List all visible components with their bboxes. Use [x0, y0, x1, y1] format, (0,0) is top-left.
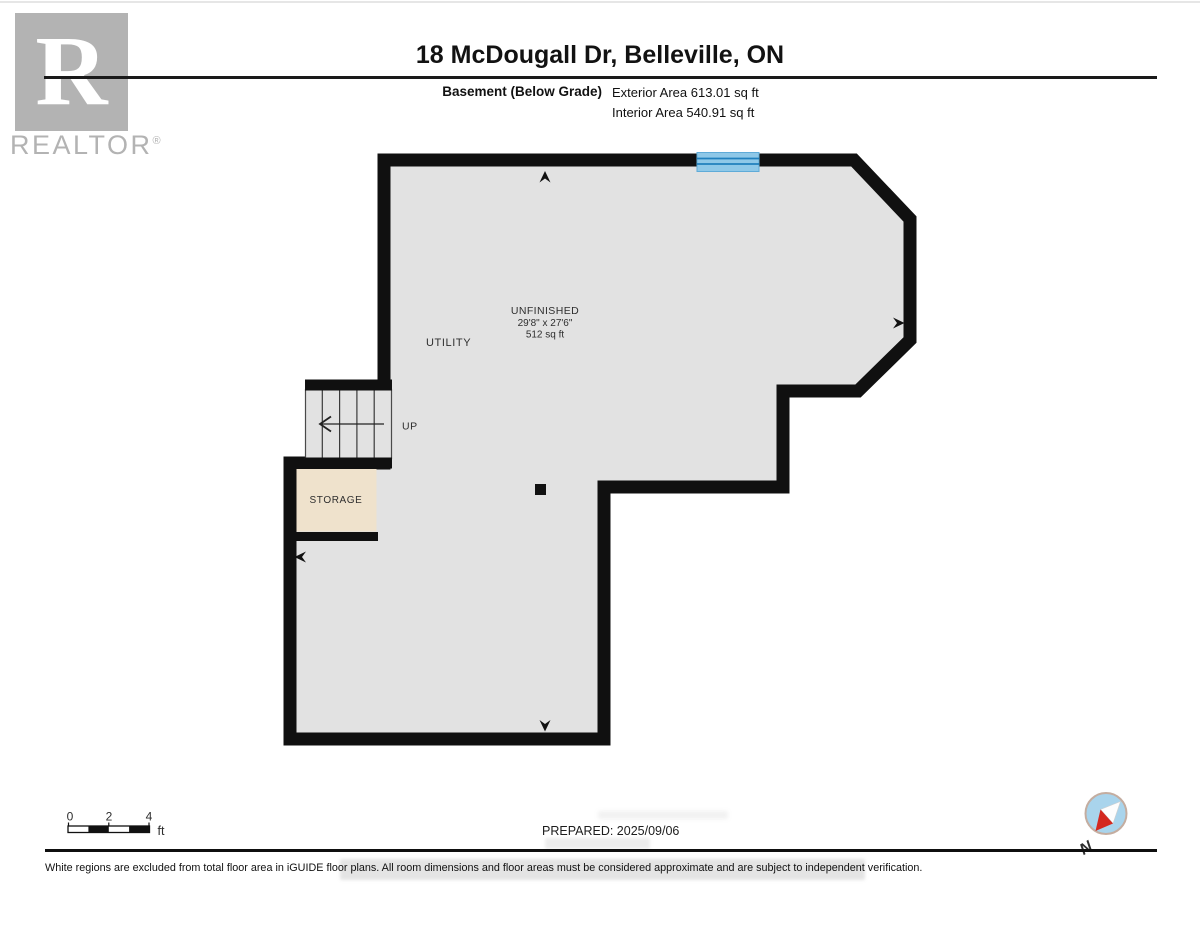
- support-column: [535, 484, 546, 495]
- room-label-storage: STORAGE: [310, 495, 363, 506]
- scale-bar-outline: [68, 826, 150, 833]
- door-arrow-right: [893, 318, 905, 329]
- scale-segment-2: [129, 826, 149, 833]
- compass-needle-south: [1101, 802, 1121, 824]
- page-title: 18 McDougall Dr, Belleville, ON: [0, 41, 1200, 70]
- disclaimer-text: White regions are excluded from total fl…: [45, 862, 1165, 874]
- header-rule: [44, 76, 1157, 79]
- scale-tick-2: 2: [106, 810, 113, 824]
- realtor-wordmark: REALTOR®: [10, 130, 160, 161]
- stairs-up-label: UP: [402, 421, 418, 433]
- scale-bar: 0 2 4 ft: [67, 810, 165, 839]
- room-label-unfinished: UNFINISHED: [511, 305, 579, 317]
- floor-plan-page: R REALTOR® 18 McDougall Dr, Belleville, …: [0, 0, 1200, 927]
- page-top-divider: [0, 1, 1200, 3]
- floor-outline: [290, 160, 910, 739]
- watermark: [598, 811, 728, 819]
- floor-level-label: Basement (Below Grade): [252, 84, 602, 99]
- scale-ticks: [69, 823, 150, 827]
- scale-tick-0: 0: [67, 810, 74, 824]
- floor-plan-svg: UNFINISHED 29'8" x 27'6" 512 sq ft UTILI…: [0, 0, 1200, 927]
- scale-unit: ft: [158, 824, 165, 838]
- door-arrow-left: [295, 552, 307, 563]
- room-label-utility: UTILITY: [426, 337, 471, 349]
- window: [697, 153, 759, 172]
- room-area: 512 sq ft: [526, 330, 565, 341]
- stairs-floor: [306, 390, 392, 459]
- door-arrow-up: [540, 171, 551, 183]
- footer-rule: [45, 849, 1157, 852]
- realtor-logo-letter: R: [15, 13, 128, 129]
- stair-treads: [322, 390, 374, 458]
- realtor-logo: R: [15, 13, 128, 131]
- room-dimensions: 29'8" x 27'6": [518, 318, 573, 329]
- registered-mark: ®: [153, 135, 161, 147]
- storage-floor: [297, 469, 377, 532]
- compass-needle-north: [1096, 810, 1114, 832]
- scale-segment-1: [88, 826, 108, 833]
- storage-room: [296, 469, 378, 537]
- door-arrow-down: [540, 720, 551, 732]
- window-frame-lines: [697, 159, 759, 165]
- compass-dial: [1086, 793, 1127, 834]
- watermark: [545, 838, 650, 849]
- exterior-area-value: Exterior Area 613.01 sq ft: [612, 85, 759, 100]
- interior-area-value: Interior Area 540.91 sq ft: [612, 105, 754, 120]
- scale-tick-4: 4: [146, 810, 153, 824]
- window-glass: [697, 153, 759, 172]
- stairs: [305, 385, 392, 463]
- stairs-up-arrow-head: [320, 417, 331, 432]
- prepared-date: PREPARED: 2025/09/06: [542, 824, 679, 838]
